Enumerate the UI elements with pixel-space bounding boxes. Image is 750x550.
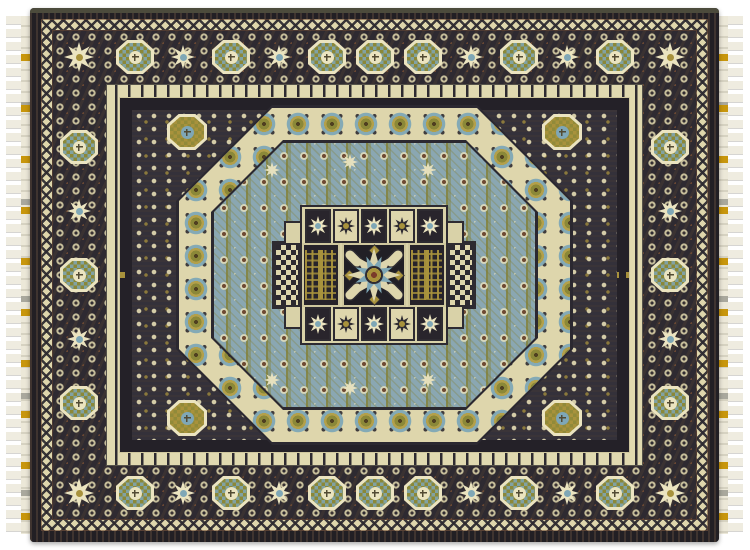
border-star-motif [555, 45, 579, 69]
medallion-core [73, 141, 86, 154]
star-core [180, 490, 187, 497]
medallion-core [609, 51, 622, 64]
medallion-core [417, 51, 430, 64]
field-star-sprinkle [264, 162, 280, 178]
star-motif [342, 380, 358, 396]
medallion-core [369, 51, 382, 64]
field-star-sprinkle [264, 372, 280, 388]
border-octagon-medallion [116, 476, 154, 510]
border-star-motif [658, 199, 682, 223]
medallion-core [321, 51, 334, 64]
field-corner-medallion [542, 114, 582, 150]
field-corner-medallion [167, 114, 207, 150]
rug-body [30, 8, 719, 542]
medallion-core [73, 269, 86, 282]
medallion-core [664, 397, 677, 410]
medallion-core [664, 141, 677, 154]
medallion-core [417, 487, 430, 500]
border-octagon-medallion [308, 40, 346, 74]
border-star-motif [459, 45, 483, 69]
border-star-motif [171, 481, 195, 505]
star-core [564, 54, 571, 61]
star-motif [420, 162, 436, 178]
fringe-right [719, 16, 743, 534]
medallion-core [321, 487, 334, 500]
border-star-motif [171, 45, 195, 69]
border-octagon-medallion [212, 476, 250, 510]
star-core [468, 490, 475, 497]
border-octagon-medallion [356, 40, 394, 74]
medallion-core [225, 51, 238, 64]
border-octagon-medallion [596, 40, 634, 74]
medallion-core [129, 51, 142, 64]
border-octagon-medallion [308, 476, 346, 510]
field-corner-medallion [167, 400, 207, 436]
star-core [468, 54, 475, 61]
medallion-core [556, 126, 569, 139]
star-core [667, 208, 674, 215]
fringe-tassels [6, 16, 21, 534]
fringe-threads [719, 16, 728, 534]
medallion-core [129, 487, 142, 500]
border-star-motif [658, 327, 682, 351]
medallion-core [225, 487, 238, 500]
border-octagon-medallion [651, 130, 689, 164]
photo-caption: Top-down photograph of a rectangular Mam… [0, 0, 1, 1]
corner-star-motif [64, 478, 94, 508]
border-octagon-medallion [404, 476, 442, 510]
border-octagon-medallion [356, 476, 394, 510]
border-star-motif [267, 45, 291, 69]
medallion-core [513, 51, 526, 64]
border-star-motif [267, 481, 291, 505]
corner-star-motif [655, 478, 685, 508]
star-core [276, 490, 283, 497]
border-octagon-medallion [500, 476, 538, 510]
border-octagon-medallion [212, 40, 250, 74]
medallion-core [181, 126, 194, 139]
medallion-core [664, 269, 677, 282]
star-core [667, 336, 674, 343]
border-star-motif [67, 327, 91, 351]
border-octagon-medallion [596, 476, 634, 510]
border-octagon-medallion [500, 40, 538, 74]
medallion-core [369, 487, 382, 500]
star-core [76, 490, 83, 497]
border-octagon-medallion [404, 40, 442, 74]
border-octagon-medallion [60, 258, 98, 292]
star-core [76, 336, 83, 343]
star-core [276, 54, 283, 61]
fringe-threads [21, 16, 30, 534]
ornament-layer [30, 8, 719, 542]
star-motif [420, 372, 436, 388]
corner-star-motif [655, 42, 685, 72]
field-star-sprinkle [420, 162, 436, 178]
border-octagon-medallion [651, 386, 689, 420]
star-core [180, 54, 187, 61]
medallion-core [513, 487, 526, 500]
corner-star-motif [64, 42, 94, 72]
border-octagon-medallion [651, 258, 689, 292]
field-star-sprinkle [342, 154, 358, 170]
star-motif [264, 162, 280, 178]
fringe-left [6, 16, 30, 534]
medallion-core [556, 412, 569, 425]
star-core [76, 54, 83, 61]
star-core [76, 208, 83, 215]
rug-photograph: Top-down photograph of a rectangular Mam… [0, 0, 750, 550]
medallion-core [609, 487, 622, 500]
border-star-motif [67, 199, 91, 223]
star-motif [342, 154, 358, 170]
star-core [564, 490, 571, 497]
fringe-tassels [728, 16, 743, 534]
field-star-sprinkle [342, 380, 358, 396]
star-core [667, 490, 674, 497]
field-star-sprinkle [420, 372, 436, 388]
star-motif [264, 372, 280, 388]
field-corner-medallion [542, 400, 582, 436]
border-octagon-medallion [116, 40, 154, 74]
border-octagon-medallion [60, 130, 98, 164]
medallion-core [73, 397, 86, 410]
border-star-motif [555, 481, 579, 505]
star-core [667, 54, 674, 61]
medallion-core [181, 412, 194, 425]
border-octagon-medallion [60, 386, 98, 420]
border-star-motif [459, 481, 483, 505]
